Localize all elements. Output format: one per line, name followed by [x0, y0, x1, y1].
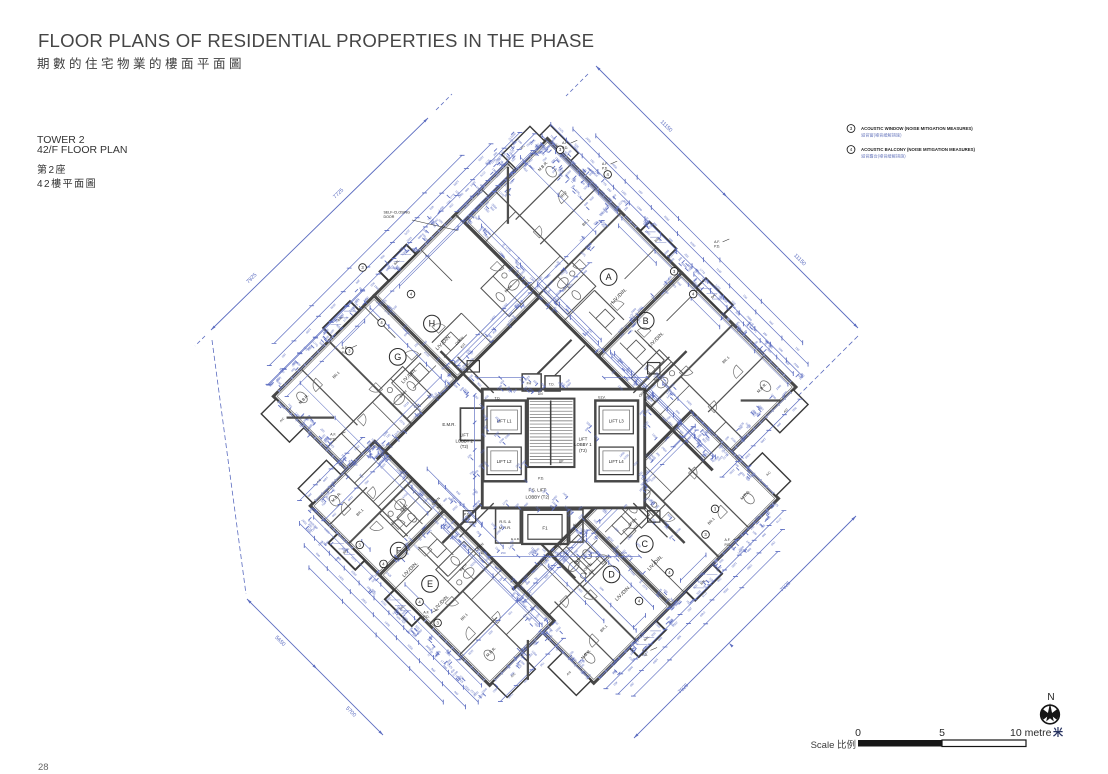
- svg-text:Scale 比例: Scale 比例: [811, 739, 856, 751]
- svg-text:P.D.: P.D.: [714, 245, 720, 249]
- svg-text:P.D.: P.D.: [602, 167, 608, 171]
- svg-text:A.F.: A.F.: [642, 648, 648, 652]
- svg-text:E: E: [427, 579, 433, 589]
- svg-text:米: 米: [1053, 726, 1064, 739]
- svg-text:ELV.: ELV.: [598, 396, 605, 400]
- svg-text:LOBBY 2: LOBBY 2: [456, 438, 474, 443]
- svg-text:ACOUSTIC BALCONY (NOISE MITIGA: ACOUSTIC BALCONY (NOISE MITIGATION MEASU…: [861, 147, 976, 152]
- svg-text:A.F.: A.F.: [330, 433, 336, 437]
- svg-text:10 metre: 10 metre: [1010, 727, 1052, 739]
- svg-text:F1: F1: [542, 526, 548, 531]
- svg-text:P.D.: P.D.: [330, 437, 336, 441]
- svg-text:DOOR: DOOR: [383, 215, 394, 219]
- svg-text:725: 725: [622, 551, 627, 555]
- svg-text:(T2): (T2): [579, 448, 587, 453]
- svg-text:B: B: [643, 316, 649, 326]
- svg-text:D: D: [608, 569, 615, 579]
- svg-text:減音窗(噪音緩解措施): 減音窗(噪音緩解措施): [861, 132, 902, 139]
- svg-text:G: G: [394, 352, 401, 362]
- svg-text:F: F: [396, 546, 402, 556]
- svg-text:N: N: [1047, 692, 1054, 703]
- svg-text:A.F.: A.F.: [602, 162, 608, 166]
- svg-text:P.D.: P.D.: [423, 615, 429, 619]
- svg-text:A.F.: A.F.: [725, 538, 731, 542]
- svg-text:ACOUSTIC WINDOW (NOISE MITIGAT: ACOUSTIC WINDOW (NOISE MITIGATION MEASUR…: [861, 126, 973, 131]
- svg-text:P.D.: P.D.: [342, 351, 348, 355]
- svg-text:SELF-CLOSING: SELF-CLOSING: [383, 210, 410, 214]
- svg-text:(T2): (T2): [460, 444, 468, 449]
- svg-text:250: 250: [501, 551, 506, 555]
- svg-text:A.F.: A.F.: [562, 141, 568, 145]
- svg-text:H.R.: H.R.: [572, 522, 576, 529]
- svg-text:E.M.R.: E.M.R.: [442, 422, 455, 427]
- svg-text:T.D.: T.D.: [549, 382, 555, 386]
- svg-text:2375: 2375: [561, 551, 568, 555]
- svg-text:P.D.: P.D.: [642, 653, 648, 657]
- svg-text:P.D.: P.D.: [538, 476, 544, 480]
- svg-text:3: 3: [850, 126, 853, 131]
- svg-text:A: A: [606, 272, 612, 282]
- svg-text:LIFT: LIFT: [579, 436, 588, 441]
- svg-text:0: 0: [855, 727, 861, 739]
- svg-text:5: 5: [939, 727, 945, 739]
- svg-text:P.D.: P.D.: [562, 146, 568, 150]
- svg-text:A.F.: A.F.: [423, 610, 429, 614]
- svg-text:T.D.: T.D.: [494, 397, 500, 401]
- svg-text:LOBBY 1: LOBBY 1: [574, 442, 592, 447]
- svg-text:LOBBY (T2): LOBBY (T2): [526, 494, 550, 499]
- svg-text:P.D.: P.D.: [725, 543, 731, 547]
- svg-text:A.F.: A.F.: [714, 240, 720, 244]
- svg-text:A.F.: A.F.: [342, 346, 348, 350]
- svg-text:減音露台(噪音緩解措施): 減音露台(噪音緩解措施): [861, 153, 906, 160]
- svg-text:LIFT L2: LIFT L2: [497, 459, 513, 464]
- svg-text:UP: UP: [559, 459, 563, 463]
- svg-text:LIFT L4: LIFT L4: [609, 459, 625, 464]
- svg-text:LIFT: LIFT: [460, 433, 469, 438]
- svg-text:4: 4: [850, 147, 853, 152]
- svg-text:LIFT L3: LIFT L3: [609, 418, 625, 423]
- svg-text:H: H: [429, 319, 436, 329]
- svg-text:C: C: [641, 539, 648, 549]
